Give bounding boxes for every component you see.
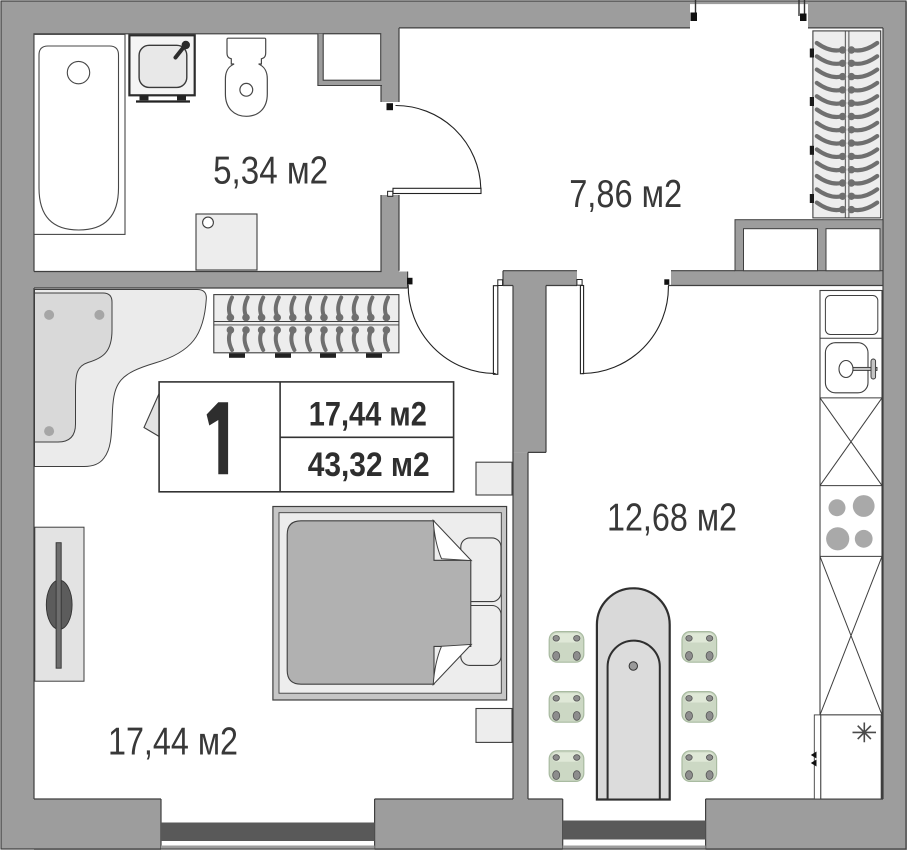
svg-text:5,34 м2: 5,34 м2 bbox=[213, 150, 328, 193]
svg-text:12,68 м2: 12,68 м2 bbox=[607, 497, 737, 540]
svg-text:17,44 м2: 17,44 м2 bbox=[309, 395, 427, 433]
svg-text:7,86 м2: 7,86 м2 bbox=[569, 173, 682, 216]
svg-text:43,32 м2: 43,32 м2 bbox=[308, 446, 430, 484]
svg-text:17,44 м2: 17,44 м2 bbox=[108, 721, 238, 764]
